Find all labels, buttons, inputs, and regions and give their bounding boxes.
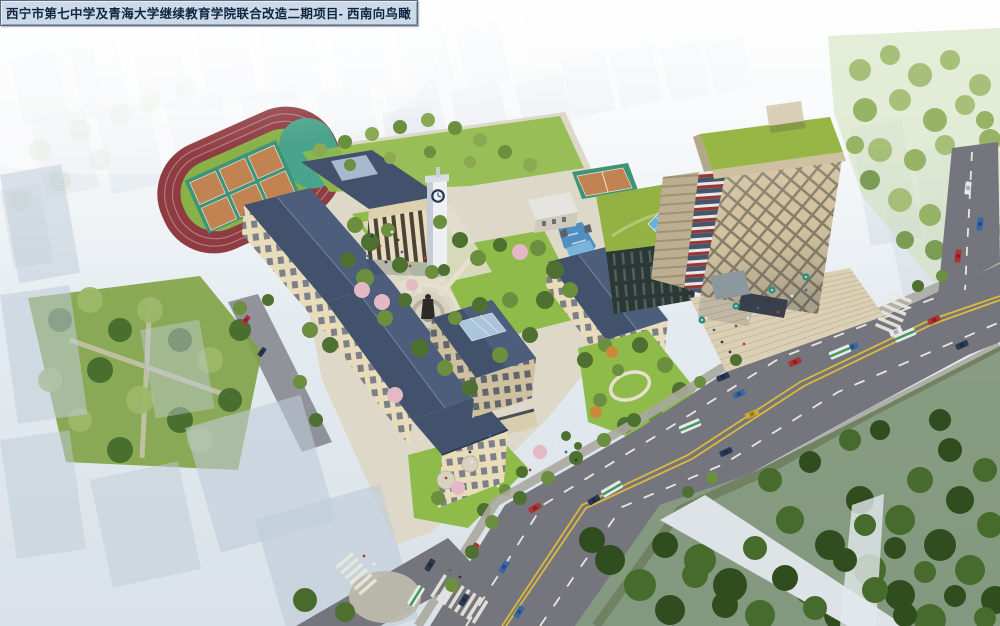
rendering-image: 西宁市第七中学及青海大学继续教育学院联合改造二期项目- 西南向鸟瞰 bbox=[0, 0, 1000, 626]
statue bbox=[421, 299, 435, 319]
rendering-scene bbox=[0, 0, 1000, 626]
title-label: 西宁市第七中学及青海大学继续教育学院联合改造二期项目- 西南向鸟瞰 bbox=[0, 0, 418, 26]
title-text: 西宁市第七中学及青海大学继续教育学院联合改造二期项目- 西南向鸟瞰 bbox=[6, 7, 411, 21]
corner-plaza bbox=[349, 571, 421, 623]
